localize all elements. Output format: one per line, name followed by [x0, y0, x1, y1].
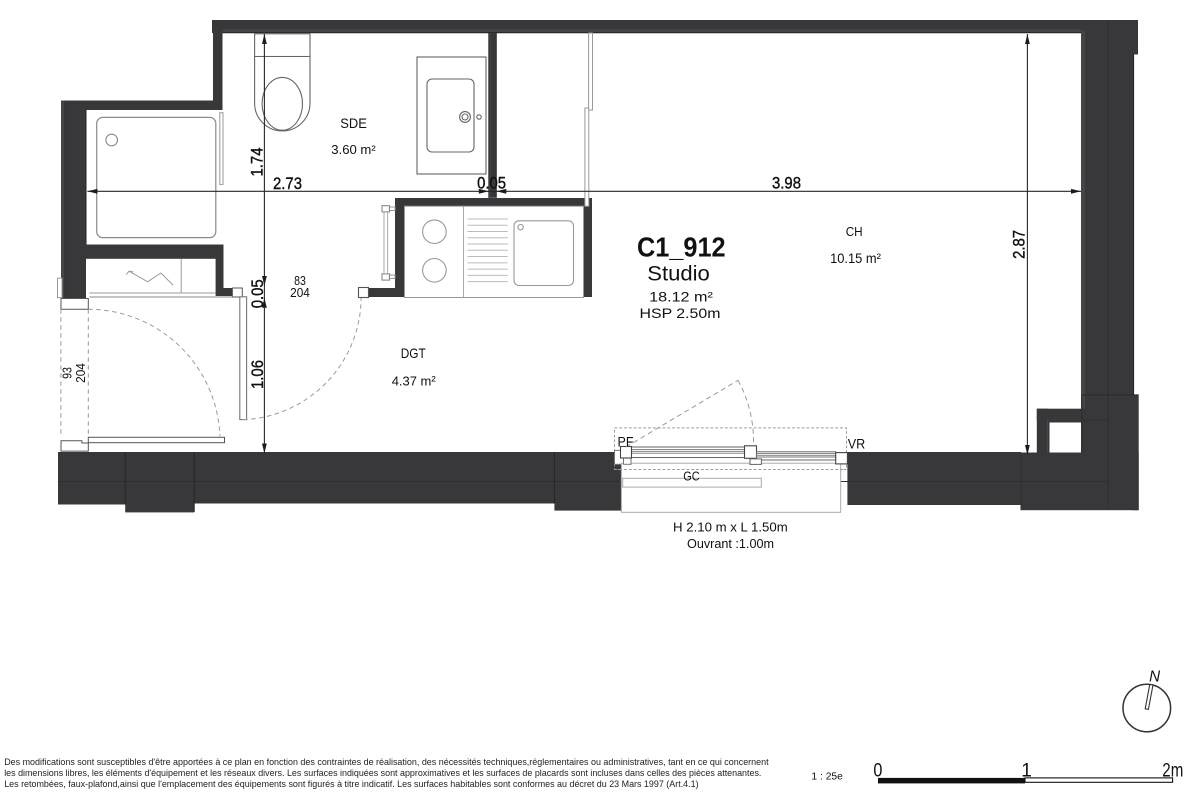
- svg-text:les dimensions libres, les élé: les dimensions libres, les éléments d'éq…: [4, 768, 761, 778]
- svg-text:H 2.10 m x L 1.50m: H 2.10 m x L 1.50m: [673, 521, 788, 535]
- svg-text:1 : 25e: 1 : 25e: [811, 772, 843, 783]
- svg-text:DGT: DGT: [401, 346, 427, 361]
- svg-text:1.06: 1.06: [248, 360, 267, 389]
- svg-text:Les retombées, faux-plafond,ai: Les retombées, faux-plafond,ainsi que l'…: [4, 779, 698, 789]
- svg-text:10.15 m²: 10.15 m²: [830, 251, 881, 266]
- svg-text:3.98: 3.98: [772, 174, 801, 193]
- svg-text:CH: CH: [846, 225, 863, 239]
- svg-text:2.87: 2.87: [1010, 230, 1029, 259]
- svg-text:3.60 m²: 3.60 m²: [331, 143, 376, 157]
- svg-text:SDE: SDE: [340, 115, 367, 131]
- svg-text:4.37 m²: 4.37 m²: [392, 373, 437, 388]
- svg-text:0.05: 0.05: [477, 174, 506, 193]
- svg-text:VR: VR: [848, 436, 866, 452]
- svg-text:204: 204: [73, 363, 88, 383]
- svg-text:2.73: 2.73: [273, 174, 302, 193]
- svg-text:GC: GC: [683, 469, 699, 484]
- svg-text:N: N: [1149, 669, 1160, 686]
- svg-text:Studio: Studio: [647, 262, 710, 285]
- svg-text:204: 204: [290, 285, 310, 300]
- svg-text:18.12 m²: 18.12 m²: [649, 288, 713, 304]
- svg-text:Des modifications sont suscept: Des modifications sont susceptibles d'êt…: [4, 757, 769, 767]
- svg-text:HSP 2.50m: HSP 2.50m: [640, 305, 721, 321]
- svg-text:PF: PF: [618, 434, 634, 450]
- svg-text:0.05: 0.05: [248, 279, 267, 308]
- svg-text:C1_912: C1_912: [637, 232, 726, 263]
- svg-text:Ouvrant :1.00m: Ouvrant :1.00m: [687, 537, 774, 551]
- svg-text:1.74: 1.74: [247, 148, 266, 177]
